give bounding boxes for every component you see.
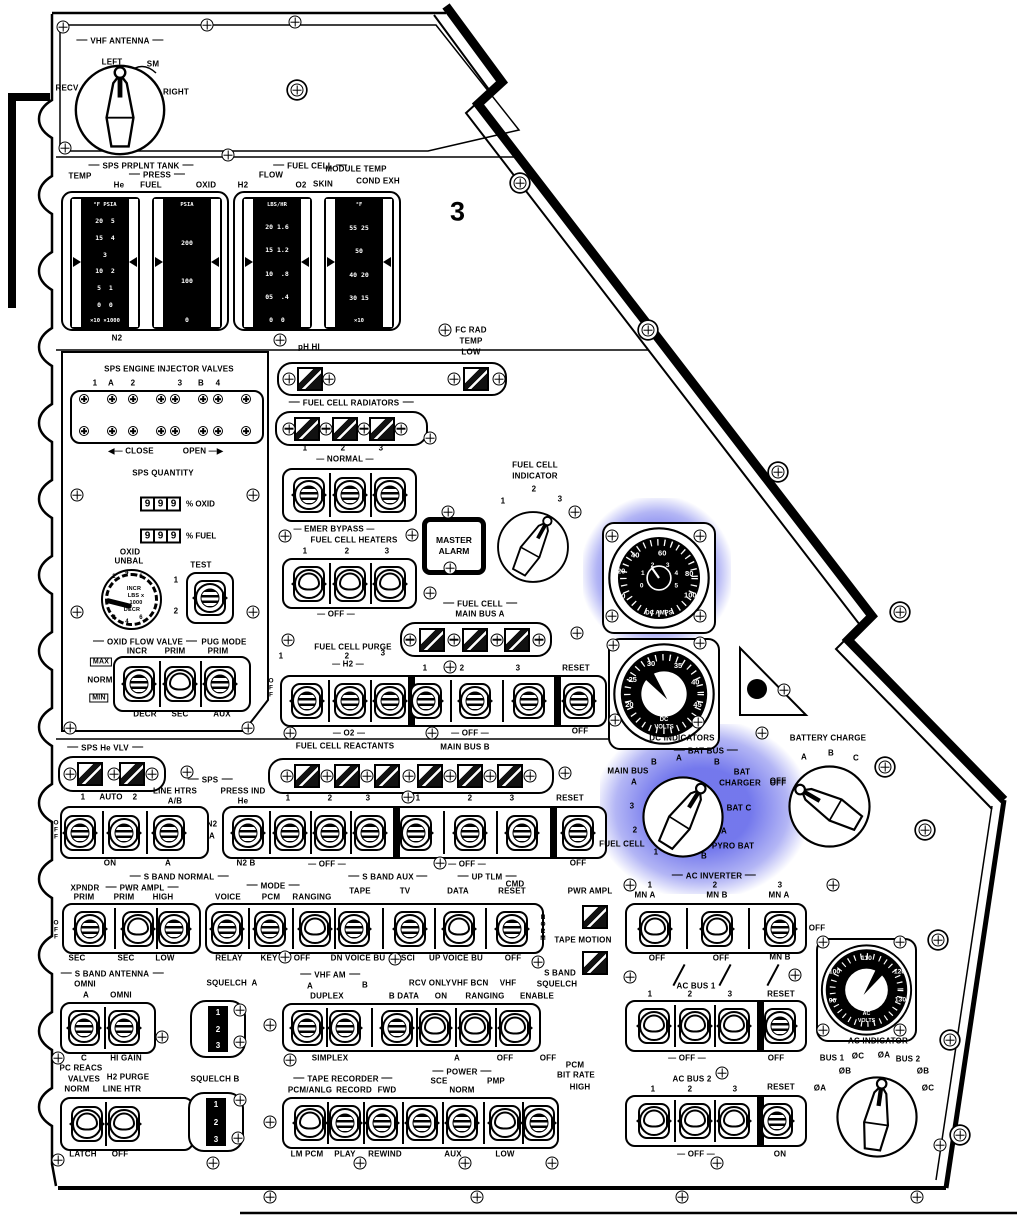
toggle-switch[interactable] bbox=[637, 1102, 671, 1140]
dci-main-bus-b: B bbox=[651, 758, 657, 767]
screw-icon bbox=[79, 394, 89, 404]
talkback-indicator bbox=[294, 764, 320, 788]
screw-icon bbox=[676, 1191, 689, 1204]
screw-icon bbox=[607, 639, 620, 652]
toggle-switch[interactable] bbox=[373, 476, 407, 514]
switch-lever bbox=[513, 683, 545, 719]
rad-2: 2 bbox=[341, 444, 346, 453]
htr-3: 3 bbox=[385, 547, 390, 556]
sps-prplnt-tank-title: SPS PRPLNT TANK bbox=[85, 162, 196, 171]
cell-divider bbox=[748, 908, 750, 949]
switch-lever bbox=[764, 1008, 796, 1044]
toggle-switch[interactable] bbox=[442, 910, 476, 948]
screw-icon bbox=[694, 530, 707, 543]
mode-title: MODE bbox=[244, 882, 303, 891]
mode-relay: RELAY bbox=[215, 954, 242, 963]
switch-lever bbox=[366, 1105, 398, 1141]
talkback-indicator bbox=[417, 764, 443, 788]
screw-icon bbox=[241, 426, 251, 436]
screw-icon bbox=[64, 722, 77, 735]
screw-icon bbox=[402, 791, 415, 804]
r2-4: 1 bbox=[416, 794, 421, 803]
pwr-ampl-talkback bbox=[582, 905, 608, 929]
switch-lever bbox=[334, 566, 366, 602]
inv-3-mna: MN A bbox=[769, 891, 790, 900]
toggle-switch[interactable] bbox=[678, 1102, 712, 1140]
rad-normal-label: — NORMAL — bbox=[316, 455, 373, 464]
press-ind-label: PRESS IND bbox=[221, 787, 266, 796]
toggle-switch[interactable] bbox=[152, 814, 186, 852]
toggle-switch[interactable] bbox=[290, 1009, 324, 1047]
fuel-cell-heaters-label: FUEL CELL HEATERS bbox=[311, 536, 398, 545]
tr-pcm-bitrate2: BIT RATE bbox=[557, 1071, 595, 1080]
tr-pmp: PMP bbox=[487, 1077, 505, 1086]
screw-icon bbox=[207, 1157, 220, 1170]
switch-lever bbox=[718, 1008, 750, 1044]
switch-lever bbox=[446, 1105, 478, 1141]
sps-quantity-title: SPS QUANTITY bbox=[132, 469, 194, 478]
talkback-indicator bbox=[463, 367, 489, 391]
vam-a2: A bbox=[454, 1054, 460, 1063]
panel-number: 3 bbox=[450, 197, 466, 228]
cmd-off: OFF bbox=[505, 954, 522, 963]
screw-icon bbox=[954, 1129, 967, 1142]
svg-text:30: 30 bbox=[647, 659, 655, 668]
mba-2: 2 bbox=[460, 664, 465, 673]
vhf-antenna-selector[interactable] bbox=[72, 62, 168, 158]
screw-icon bbox=[404, 633, 417, 646]
mba-3: 3 bbox=[516, 664, 521, 673]
inv-2-off: OFF bbox=[713, 954, 730, 963]
uptlm-data: DATA bbox=[447, 887, 469, 896]
screw-icon bbox=[546, 1157, 559, 1170]
xpndr-prim: PRIM bbox=[74, 893, 95, 902]
screw-icon bbox=[772, 466, 785, 479]
toggle-switch[interactable] bbox=[333, 565, 367, 603]
screw-icon bbox=[234, 1004, 247, 1017]
screw-icon bbox=[491, 633, 504, 646]
cell-divider bbox=[485, 908, 487, 949]
talkback-indicator bbox=[334, 764, 360, 788]
fc-rad-label: FC RAD bbox=[455, 326, 486, 335]
toggle-switch[interactable] bbox=[70, 1105, 104, 1143]
dial-lbs: LBS x bbox=[128, 593, 145, 599]
screw-icon bbox=[52, 1154, 65, 1167]
pcr-h2-purge: H2 PURGE bbox=[107, 1073, 150, 1082]
toggle-switch[interactable] bbox=[562, 682, 596, 720]
auto-label: AUTO bbox=[99, 793, 122, 802]
aux-tape: TAPE bbox=[349, 887, 371, 896]
screw-icon bbox=[247, 606, 260, 619]
toggle-switch[interactable] bbox=[353, 814, 387, 852]
switch-lever bbox=[562, 815, 594, 851]
pcr-line-htr: LINE HTR bbox=[103, 1085, 142, 1094]
toggle-switch[interactable] bbox=[292, 565, 326, 603]
col-module-temp: MODULE TEMP bbox=[325, 165, 386, 174]
screw-icon bbox=[242, 722, 255, 735]
svg-text:5: 5 bbox=[674, 583, 678, 590]
screw-icon bbox=[559, 767, 572, 780]
screw-icon bbox=[524, 770, 537, 783]
toggle-switch[interactable] bbox=[273, 814, 307, 852]
talkback-indicator bbox=[419, 628, 445, 652]
switch-lever bbox=[299, 911, 331, 947]
toggle-switch[interactable] bbox=[63, 814, 97, 852]
switch-lever bbox=[108, 1106, 140, 1142]
cell-divider bbox=[502, 680, 504, 722]
screw-icon bbox=[320, 422, 333, 435]
reset-off-label: OFF bbox=[572, 727, 589, 736]
sb-off-vertical: OFF bbox=[53, 920, 60, 941]
cell-divider bbox=[496, 811, 498, 854]
toggle-switch[interactable] bbox=[638, 910, 672, 948]
pug-mode-title: PUG MODE bbox=[201, 638, 246, 647]
battery-charge-selector[interactable] bbox=[786, 763, 873, 850]
vhf-am-switch-bank bbox=[282, 1003, 541, 1052]
screw-icon bbox=[624, 971, 637, 984]
switch-lever bbox=[211, 911, 243, 947]
xpndr-label: XPNDR bbox=[70, 884, 99, 893]
switch-lever bbox=[334, 477, 366, 513]
switch-lever bbox=[638, 1008, 670, 1044]
screw-icon bbox=[894, 606, 907, 619]
tape-motion-talkback bbox=[582, 951, 608, 975]
vam-vhf-bcn: VHF BCN bbox=[452, 979, 489, 988]
ac-indicator-selector[interactable] bbox=[834, 1074, 920, 1160]
apollo-panel-3-schematic: VHF ANTENNA RECV LEFT SM RIGHT 3 SPS PRP… bbox=[0, 0, 1017, 1227]
inv-2: 2 bbox=[713, 881, 718, 890]
inv-off-right: OFF bbox=[809, 924, 826, 933]
switch-lever bbox=[232, 815, 264, 851]
toggle-switch[interactable] bbox=[107, 1009, 141, 1047]
dial-incr: INCR bbox=[127, 586, 141, 592]
screw-icon bbox=[514, 177, 527, 190]
screw-icon bbox=[716, 1067, 729, 1080]
screw-icon bbox=[919, 824, 932, 837]
vam-b-data: B DATA bbox=[389, 992, 419, 1001]
main-bus-a-talkbacks bbox=[400, 622, 552, 657]
ant-hi-gain: HI GAIN bbox=[110, 1054, 142, 1063]
test-switch-bank bbox=[186, 572, 234, 624]
injector-valves-bank bbox=[70, 390, 264, 444]
switch-lever bbox=[443, 911, 475, 947]
injector-valves-title: SPS ENGINE INJECTOR VALVES bbox=[104, 365, 234, 374]
toggle-switch[interactable] bbox=[73, 910, 107, 948]
svg-text:110: 110 bbox=[861, 955, 872, 962]
ant-omni-top: OMNI bbox=[74, 980, 96, 989]
toggle-switch[interactable] bbox=[333, 476, 367, 514]
tape-recorder-title: TAPE RECORDER bbox=[290, 1075, 395, 1084]
switch-lever bbox=[679, 1103, 711, 1139]
switch-lever bbox=[459, 683, 491, 719]
screw-icon bbox=[389, 953, 402, 966]
switch-lever bbox=[314, 815, 346, 851]
talkback-indicator bbox=[457, 764, 483, 788]
sps-he-vlv-title: SPS He VLV bbox=[64, 744, 146, 753]
inj-4: 4 bbox=[216, 379, 221, 388]
toggle-switch[interactable] bbox=[405, 1104, 439, 1142]
toggle-switch[interactable] bbox=[365, 1104, 399, 1142]
toggle-switch[interactable] bbox=[107, 814, 141, 852]
screw-icon bbox=[247, 489, 260, 502]
screw-icon bbox=[279, 951, 292, 964]
dci-bat-c: BAT C bbox=[727, 804, 752, 813]
test-label: TEST bbox=[190, 561, 211, 570]
n2-label: N2 bbox=[112, 334, 123, 343]
inv-2-mnb: MN B bbox=[706, 891, 727, 900]
col-o2: O2 bbox=[295, 181, 306, 190]
vam-off2: OFF bbox=[540, 1054, 557, 1063]
dc-indicators-selector[interactable] bbox=[640, 774, 726, 860]
screw-icon bbox=[284, 1054, 297, 1067]
screw-icon bbox=[291, 84, 304, 97]
htr-2: 2 bbox=[345, 547, 350, 556]
tape-meter-press-psia: PSIA2001000 bbox=[152, 197, 222, 329]
toggle-switch[interactable] bbox=[333, 682, 367, 720]
vam-duplex: DUPLEX bbox=[310, 992, 344, 1001]
pa-low: LOW bbox=[155, 954, 174, 963]
pc-reacs-label: PC REACS bbox=[60, 1064, 103, 1073]
toggle-switch[interactable] bbox=[717, 1007, 751, 1045]
toggle-switch[interactable] bbox=[380, 1009, 414, 1047]
screw-icon bbox=[894, 1024, 907, 1037]
toggle-switch[interactable] bbox=[393, 910, 427, 948]
acb2-off: — OFF — bbox=[677, 1150, 715, 1159]
acind-r-oa: ØA bbox=[878, 1051, 890, 1060]
svg-text:100: 100 bbox=[829, 969, 841, 976]
toggle-switch[interactable] bbox=[458, 682, 492, 720]
toggle-switch[interactable] bbox=[107, 1105, 141, 1143]
test-1: 1 bbox=[174, 576, 179, 585]
cell-divider bbox=[686, 908, 688, 949]
toggle-switch[interactable] bbox=[561, 814, 595, 852]
screw-icon bbox=[424, 432, 437, 445]
screw-icon bbox=[283, 373, 296, 386]
pa-high: HIGH bbox=[153, 893, 174, 902]
dci-bat-bus-b: B bbox=[714, 758, 720, 767]
toggle-switch[interactable] bbox=[495, 910, 529, 948]
squelch-a-label: SQUELCH A bbox=[206, 979, 257, 988]
toggle-switch[interactable] bbox=[498, 1009, 532, 1047]
dial-6b: 6 bbox=[139, 615, 143, 621]
sps-bracket: SPS bbox=[185, 776, 236, 785]
toggle-switch[interactable] bbox=[409, 682, 443, 720]
inj-a: A bbox=[108, 379, 114, 388]
acb1-1: 1 bbox=[648, 990, 653, 999]
screw-icon bbox=[71, 489, 84, 502]
toggle-switch[interactable] bbox=[328, 1104, 362, 1142]
inv-3-mnb: MN B bbox=[769, 953, 790, 962]
tr-rewind: REWIND bbox=[368, 1150, 402, 1159]
toggle-switch[interactable] bbox=[292, 476, 326, 514]
bc-b: B bbox=[828, 749, 834, 758]
toggle-switch[interactable] bbox=[522, 1104, 556, 1142]
screw-icon bbox=[444, 770, 457, 783]
fuel-percent-label: % FUEL bbox=[186, 532, 216, 541]
mode-key: KEY bbox=[260, 954, 277, 963]
toggle-switch[interactable] bbox=[67, 1009, 101, 1047]
acb2-reset: RESET bbox=[767, 1083, 795, 1092]
pwr-ampl-label: PWR AMPL bbox=[103, 884, 182, 893]
screw-icon bbox=[283, 422, 296, 435]
screw-icon bbox=[609, 714, 622, 727]
switch-lever bbox=[293, 566, 325, 602]
toggle-switch[interactable] bbox=[163, 665, 197, 703]
main-bus-b-switch-bank bbox=[222, 806, 607, 859]
screw-icon bbox=[934, 1139, 947, 1152]
screw-icon bbox=[642, 324, 655, 337]
master-alarm-line1: MASTER bbox=[436, 535, 472, 546]
toggle-switch[interactable] bbox=[458, 1009, 492, 1047]
switch-lever bbox=[291, 1010, 323, 1046]
toggle-switch[interactable] bbox=[328, 1009, 362, 1047]
toggle-switch[interactable] bbox=[231, 814, 265, 852]
screw-icon bbox=[264, 1019, 277, 1032]
r2-off1: — OFF — bbox=[308, 860, 346, 869]
screw-icon bbox=[361, 770, 374, 783]
toggle-switch[interactable] bbox=[399, 814, 433, 852]
tr-lm-pcm: LM PCM bbox=[291, 1150, 324, 1159]
ofv-prim: PRIM bbox=[165, 647, 186, 656]
dial-decr: DECR bbox=[124, 607, 140, 613]
toggle-switch[interactable] bbox=[637, 1007, 671, 1045]
reactants-talkbacks bbox=[268, 758, 554, 794]
switch-lever bbox=[506, 815, 538, 851]
toggle-switch[interactable] bbox=[512, 682, 546, 720]
toggle-switch[interactable] bbox=[122, 665, 156, 703]
svg-text:40: 40 bbox=[691, 677, 699, 686]
tr-power-title: POWER bbox=[429, 1068, 494, 1077]
screw-icon bbox=[756, 727, 769, 740]
screw-icon bbox=[232, 1132, 245, 1145]
pug-prim: PRIM bbox=[208, 647, 229, 656]
auto-2: 2 bbox=[133, 793, 138, 802]
switch-lever bbox=[108, 1010, 140, 1046]
screw-icon bbox=[198, 426, 208, 436]
toggle-switch[interactable] bbox=[203, 665, 237, 703]
toggle-switch[interactable] bbox=[337, 910, 371, 948]
svg-text:AC: AC bbox=[863, 1011, 871, 1017]
switch-lever bbox=[499, 1010, 531, 1046]
vam-rcv-only: RCV ONLY bbox=[409, 979, 451, 988]
fc-main-bus-a-title2: MAIN BUS A bbox=[455, 610, 504, 619]
inj-b: B bbox=[198, 379, 204, 388]
switch-lever bbox=[394, 911, 426, 947]
svg-text:120: 120 bbox=[894, 969, 906, 976]
htr-off-label: — OFF — bbox=[317, 610, 355, 619]
toggle-switch[interactable] bbox=[298, 910, 332, 948]
toggle-switch[interactable] bbox=[157, 910, 191, 948]
fci-1: 1 bbox=[501, 497, 506, 506]
toggle-switch[interactable] bbox=[678, 1007, 712, 1045]
screw-icon bbox=[279, 530, 292, 543]
toggle-switch[interactable] bbox=[453, 814, 487, 852]
toggle-switch[interactable] bbox=[760, 1102, 794, 1140]
switch-lever bbox=[108, 815, 140, 851]
screw-icon bbox=[789, 969, 802, 982]
fuel-cell-indicator-selector[interactable] bbox=[495, 509, 571, 585]
switch-lever bbox=[761, 1103, 793, 1139]
toggle-switch[interactable] bbox=[445, 1104, 479, 1142]
screw-icon bbox=[406, 529, 419, 542]
ac-inverter-switch-bank bbox=[625, 903, 807, 954]
screw-icon bbox=[107, 426, 117, 436]
screw-icon bbox=[459, 1157, 472, 1170]
screw-icon bbox=[827, 879, 840, 892]
toggle-switch[interactable] bbox=[253, 910, 287, 948]
screw-icon bbox=[533, 633, 546, 646]
screw-icon bbox=[424, 587, 437, 600]
ofv-norm: NORM bbox=[87, 676, 112, 685]
toggle-switch[interactable] bbox=[373, 682, 407, 720]
switch-lever bbox=[64, 815, 96, 851]
toggle-switch[interactable] bbox=[121, 910, 155, 948]
screw-icon bbox=[448, 373, 461, 386]
screw-icon bbox=[198, 394, 208, 404]
screw-icon bbox=[107, 394, 117, 404]
toggle-switch[interactable] bbox=[313, 814, 347, 852]
toggle-switch[interactable] bbox=[418, 1009, 452, 1047]
squelch-b-label: SQUELCH B bbox=[191, 1075, 240, 1084]
r2-off3: OFF bbox=[570, 859, 587, 868]
ant-a: A bbox=[83, 991, 89, 1000]
svg-text:20: 20 bbox=[625, 700, 633, 709]
r2-off2: — OFF — bbox=[448, 860, 486, 869]
purge-3: 3 bbox=[381, 649, 386, 658]
toggle-switch[interactable] bbox=[193, 579, 227, 617]
acb1-reset: RESET bbox=[767, 990, 795, 999]
vam-enable: ENABLE bbox=[520, 992, 554, 1001]
bc-a: A bbox=[801, 753, 807, 762]
vhf-antenna-title: VHF ANTENNA bbox=[73, 37, 166, 46]
toggle-switch[interactable] bbox=[210, 910, 244, 948]
purge-off-vertical: OFF bbox=[268, 678, 275, 699]
screw-icon bbox=[911, 1191, 924, 1204]
purge-h2-label: — H2 — bbox=[332, 660, 364, 669]
open-label: OPEN —▶ bbox=[183, 447, 223, 456]
oxid-percent-label: % OXID bbox=[186, 500, 215, 509]
switch-lever bbox=[374, 566, 406, 602]
acb1-2: 2 bbox=[688, 990, 693, 999]
toggle-switch[interactable] bbox=[373, 565, 407, 603]
dial-4t: 4 bbox=[125, 570, 129, 576]
test-2: 2 bbox=[174, 607, 179, 616]
svg-text:20: 20 bbox=[617, 567, 625, 576]
fci-title2: INDICATOR bbox=[512, 472, 558, 481]
svg-text:DC: DC bbox=[660, 717, 669, 723]
aux-tv: TV bbox=[400, 887, 411, 896]
screw-icon bbox=[323, 373, 336, 386]
svg-text:80: 80 bbox=[685, 569, 693, 578]
screw-icon bbox=[932, 934, 945, 947]
dial-2b: 2 bbox=[112, 615, 116, 621]
screw-icon bbox=[817, 1024, 830, 1037]
screw-icon bbox=[817, 936, 830, 949]
switch-lever bbox=[194, 580, 226, 616]
screw-icon bbox=[181, 766, 194, 779]
toggle-switch[interactable] bbox=[505, 814, 539, 852]
toggle-switch[interactable] bbox=[700, 910, 734, 948]
svg-text:DC AMPS: DC AMPS bbox=[645, 611, 672, 617]
screw-icon bbox=[692, 716, 705, 729]
aux-sci: SCI bbox=[401, 954, 415, 963]
toggle-switch[interactable] bbox=[763, 910, 797, 948]
screw-icon bbox=[289, 16, 302, 29]
toggle-switch[interactable] bbox=[763, 1007, 797, 1045]
pcr-latch: LATCH bbox=[69, 1150, 97, 1159]
toggle-switch[interactable] bbox=[290, 682, 324, 720]
toggle-switch[interactable] bbox=[717, 1102, 751, 1140]
